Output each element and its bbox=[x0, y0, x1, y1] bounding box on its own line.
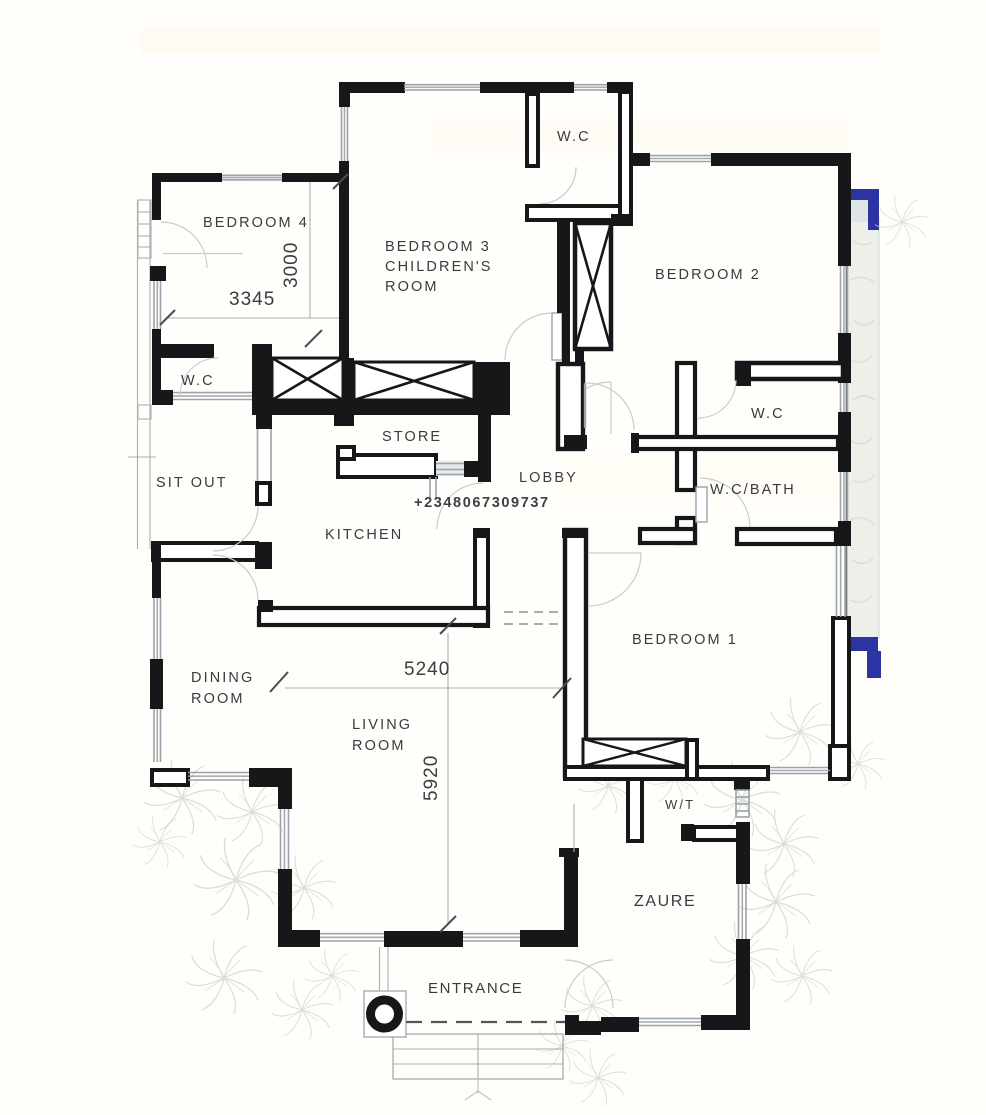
svg-text:ZAURE: ZAURE bbox=[634, 893, 696, 910]
svg-text:BEDROOM 3: BEDROOM 3 bbox=[385, 239, 491, 255]
svg-text:W.C/BATH: W.C/BATH bbox=[710, 482, 796, 498]
svg-text:BEDROOM 1: BEDROOM 1 bbox=[632, 632, 738, 648]
svg-text:LIVING: LIVING bbox=[352, 717, 412, 733]
svg-text:ENTRANCE: ENTRANCE bbox=[428, 980, 523, 997]
svg-text:3345: 3345 bbox=[229, 289, 275, 310]
svg-text:ROOM: ROOM bbox=[385, 279, 439, 295]
svg-text:SIT OUT: SIT OUT bbox=[156, 475, 228, 491]
svg-text:W.C: W.C bbox=[751, 406, 785, 422]
svg-text:W/T: W/T bbox=[665, 797, 695, 812]
svg-text:DINING: DINING bbox=[191, 670, 254, 686]
svg-text:W.C: W.C bbox=[181, 373, 215, 389]
svg-text:W.C: W.C bbox=[557, 129, 591, 145]
svg-text:BEDROOM 4: BEDROOM 4 bbox=[203, 215, 309, 231]
svg-text:5920: 5920 bbox=[421, 755, 442, 801]
svg-text:ROOM: ROOM bbox=[352, 738, 406, 754]
svg-text:CHILDREN'S: CHILDREN'S bbox=[385, 259, 493, 275]
svg-text:LOBBY: LOBBY bbox=[519, 470, 578, 486]
svg-text:KITCHEN: KITCHEN bbox=[325, 527, 403, 543]
svg-text:5240: 5240 bbox=[404, 659, 450, 680]
svg-text:STORE: STORE bbox=[382, 429, 442, 445]
svg-text:+2348067309737: +2348067309737 bbox=[414, 495, 550, 511]
svg-text:3000: 3000 bbox=[281, 242, 302, 288]
svg-text:BEDROOM 2: BEDROOM 2 bbox=[655, 267, 761, 283]
svg-text:ROOM: ROOM bbox=[191, 691, 245, 707]
